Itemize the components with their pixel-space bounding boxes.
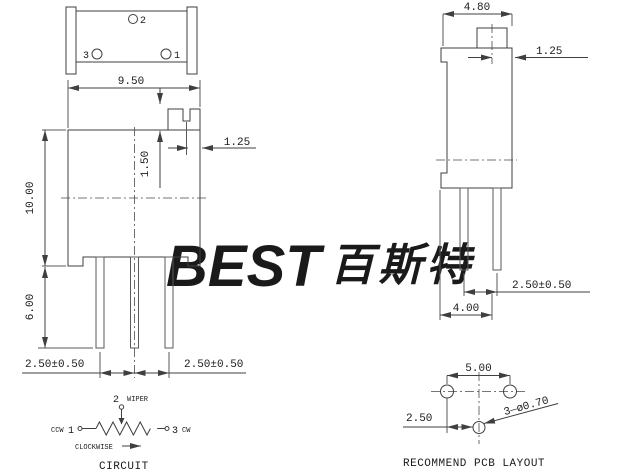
clockwise-label: CLOCKWISE: [75, 444, 113, 452]
terminal-1-node: [78, 427, 82, 431]
pad-span-dim-text: 5.00: [465, 363, 491, 375]
hole-3-label: 3: [83, 51, 89, 62]
hole-2-label: 2: [140, 16, 146, 27]
side-screw-offset-text: 1.25: [536, 46, 562, 58]
side-pin-pitch-text: 2.50±0.50: [512, 280, 571, 292]
body-height-dimension: 10.00: [25, 130, 66, 266]
screw-offset-dimension-front: 1.25: [168, 137, 256, 149]
adjust-screw-head: [168, 109, 200, 130]
hole-spec-text: 3—ø0.70: [503, 395, 551, 419]
pad-offset-dim-text: 2.50: [406, 413, 432, 425]
side-view: [436, 24, 517, 270]
side-width-dim-text: 4.80: [464, 2, 490, 14]
side-pin-pitch-dimension: 2.50±0.50: [464, 273, 590, 296]
ccw-label: CCW: [51, 427, 64, 435]
cw-label: CW: [182, 427, 191, 435]
top-view-body: [76, 11, 187, 62]
hole-1-label: 1: [174, 51, 180, 62]
hole-2-circle: [129, 15, 138, 24]
pin-length-dim-text: 6.00: [25, 294, 37, 320]
terminal-3-node: [165, 427, 169, 431]
side-pin-rear: [493, 188, 501, 270]
pcb-layout: 5.00 2.50 3—ø0.70 RECOMMEND PCB LAYOUT: [403, 363, 558, 470]
pin-pitch-right-text: 2.50±0.50: [184, 359, 243, 371]
circuit-diagram: 2 WIPER CCW 1 3 CW CLOCKWISE CIRCUIT: [51, 395, 191, 473]
terminal-1-label: 1: [68, 426, 74, 437]
pin-length-dimension: 6.00: [25, 267, 93, 348]
side-depth-dim-text: 4.00: [453, 303, 479, 315]
terminal-2-label: 2: [113, 395, 119, 406]
pin-pitch-left-text: 2.50±0.50: [25, 359, 84, 371]
front-width-dimension: 9.50: [68, 76, 200, 128]
resistor-zigzag: [96, 422, 150, 435]
watermark-cjk: 百斯特: [330, 241, 476, 290]
pcb-caption: RECOMMEND PCB LAYOUT: [403, 458, 545, 470]
top-view-left-cap: [66, 7, 76, 74]
screw-depth-dim-text: 1.50: [140, 151, 152, 177]
screw-depth-dimension: 1.50: [140, 131, 160, 188]
front-width-dim-text: 9.50: [118, 76, 144, 88]
body-height-dim-text: 10.00: [25, 181, 37, 214]
terminal-3-label: 3: [172, 426, 178, 437]
hole-1-circle: [161, 49, 171, 59]
pin-1: [96, 257, 104, 348]
wiper-label: WIPER: [127, 396, 149, 404]
technical-drawing-canvas: BEST 百斯特 2 3 1 9.50 1.50: [0, 0, 622, 473]
watermark: BEST 百斯特: [166, 234, 476, 299]
circuit-caption: CIRCUIT: [99, 461, 149, 473]
top-view-right-cap: [187, 7, 197, 74]
side-body-outline: [441, 48, 512, 188]
datasheet-drawing-page: BEST 百斯特 2 3 1 9.50 1.50: [0, 0, 622, 473]
pin-pitch-dimensions: 2.50±0.50 2.50±0.50: [22, 352, 246, 378]
top-view: 2 3 1: [66, 7, 197, 74]
screw-offset-dim-text: 1.25: [224, 137, 250, 149]
hole-3-circle: [92, 49, 102, 59]
wiper-arrow: [119, 418, 125, 425]
terminal-2-node: [119, 405, 123, 409]
